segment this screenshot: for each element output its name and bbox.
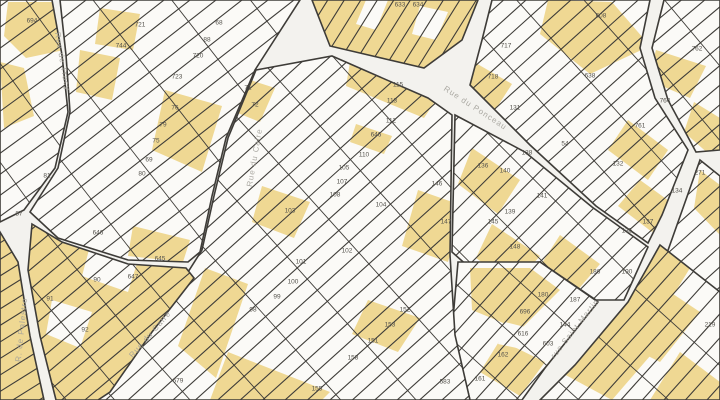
parcel-number-label: 104 (376, 202, 387, 209)
parcel-number-label: 144 (560, 322, 571, 329)
parcel-number-label: 646 (371, 132, 382, 139)
parcel-number-label: 54 (561, 141, 569, 148)
parcel-number-label: 720 (193, 53, 204, 60)
parcel-number-label: 139 (505, 209, 516, 216)
parcel-number-label: 146 (432, 181, 443, 188)
parcel-number-label: 140 (500, 168, 511, 175)
parcel-number-label: 608 (596, 13, 607, 20)
parcel-number-label: 694 (27, 18, 38, 25)
parcel-number-label: 762 (692, 46, 703, 53)
parcel-number-label: 633 (395, 2, 406, 9)
parcel-number-label: 136 (478, 163, 489, 170)
map-blocks (0, 0, 720, 400)
parcel-number-label: 105 (339, 165, 350, 172)
parcel-number-label: 679 (173, 378, 184, 385)
parcel-number-label: 92 (81, 327, 89, 334)
map-viewport[interactable]: Rue du CaireRue du CaireRue du Ponceauru… (0, 0, 720, 400)
parcel-number-label: 100 (288, 279, 299, 286)
parcel-number-label: 761 (635, 123, 646, 130)
parcel-number-label: 152 (400, 307, 411, 314)
parcel-number-label: 99 (273, 294, 281, 301)
parcel-number-label: 91 (46, 296, 54, 303)
parcel-number-label: 108 (330, 192, 341, 199)
parcel-number-label: 161 (475, 376, 486, 383)
parcel-number-label: 721 (135, 22, 146, 29)
parcel-number-label: 271 (695, 170, 706, 177)
parcel-number-label: 76 (171, 105, 179, 112)
cadastral-map[interactable]: Rue du CaireRue du CaireRue du Ponceauru… (0, 0, 720, 400)
parcel-number-label: 723 (172, 74, 183, 81)
parcel-number-label: 132 (613, 161, 624, 168)
parcel-number-label: 603 (543, 341, 554, 348)
parcel-number-label: 134 (672, 188, 683, 195)
parcel-number-label: 634 (413, 2, 424, 9)
parcel-number-label: 764 (660, 98, 671, 105)
parcel-number-label: 79 (159, 122, 167, 129)
parcel-number-label: 115 (393, 82, 404, 89)
parcel-number-label: 744 (116, 43, 127, 50)
parcel-number-label: 145 (488, 219, 499, 226)
parcel-number-label: 718 (488, 74, 499, 81)
parcel-number-label: 153 (385, 322, 396, 329)
parcel-number-label: 87 (15, 211, 23, 218)
parcel-number-label: 107 (337, 179, 348, 186)
parcel-number-label: 583 (440, 379, 451, 386)
parcel-number-label: 80 (138, 171, 146, 178)
parcel-number-label: 90 (93, 277, 101, 284)
parcel-number-label: 71 (244, 85, 252, 92)
parcel-number-label: 616 (518, 331, 529, 338)
parcel-number-label: 131 (510, 105, 521, 112)
parcel-number-label: 158 (348, 355, 359, 362)
parcel-number-label: 717 (501, 43, 512, 50)
parcel-number-label: 137 (643, 219, 654, 226)
parcel-number-label: 98 (249, 307, 257, 314)
parcel-number-label: 190 (622, 269, 633, 276)
parcel-number-label: 151 (368, 338, 379, 345)
parcel-number-label: 141 (537, 193, 548, 200)
parcel-number-label: 155 (312, 386, 323, 393)
parcel-number-label: 696 (520, 309, 531, 316)
parcel-number-label: 148 (510, 244, 521, 251)
parcel-number-label: 88 (203, 37, 211, 44)
parcel-number-label: 69 (145, 157, 153, 164)
parcel-number-label: 110 (359, 152, 370, 159)
parcel-number-label: 101 (296, 259, 307, 266)
parcel-number-label: 187 (570, 297, 581, 304)
parcel-number-label: 75 (152, 138, 160, 145)
parcel-number-label: 219 (705, 322, 716, 329)
parcel-number-label: 113 (387, 98, 398, 105)
parcel-number-label: 81 (43, 173, 51, 180)
parcel-number-label: 647 (128, 274, 139, 281)
parcel-number-label: 638 (585, 73, 596, 80)
parcel-number-label: 135 (622, 228, 633, 235)
parcel-number-label: 138 (522, 150, 533, 157)
parcel-number-label: 162 (498, 352, 509, 359)
parcel-number-label: 102 (342, 248, 353, 255)
parcel-number-label: 147 (441, 219, 452, 226)
parcel-number-label: 72 (251, 102, 259, 109)
parcel-number-label: 68 (215, 20, 223, 27)
parcel-number-label: 103 (285, 208, 296, 215)
parcel-number-label: 186 (590, 269, 601, 276)
parcel-number-label: 646 (93, 230, 104, 237)
parcel-number-label: 112 (386, 118, 397, 125)
parcel-number-label: 180 (538, 292, 549, 299)
parcel-number-label: 645 (155, 256, 166, 263)
